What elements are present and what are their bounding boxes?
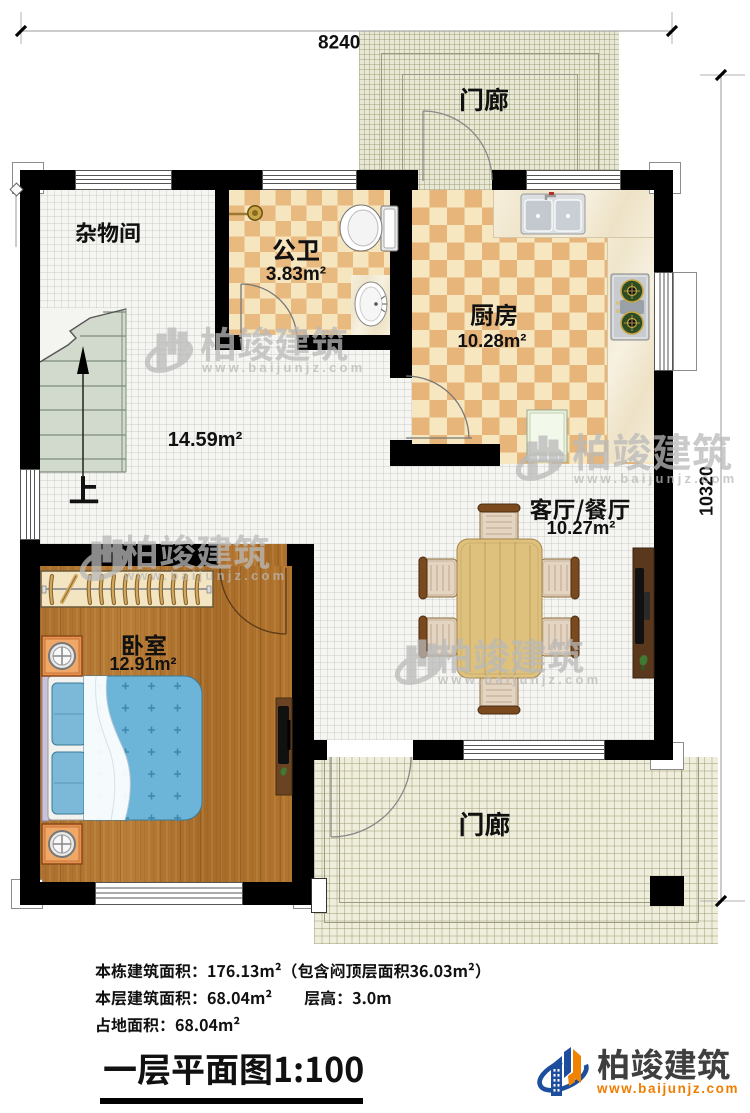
svg-text:10.28m²: 10.28m² [458,330,527,351]
svg-text:www.baijunjz.com: www.baijunjz.com [573,471,737,486]
svg-text:14.59m²: 14.59m² [168,429,243,451]
svg-text:3.83m²: 3.83m² [266,264,326,285]
svg-text:10.27m²: 10.27m² [547,517,616,538]
svg-text:www.baijunjz.com: www.baijunjz.com [437,672,601,687]
svg-text:www.baijunjz.com: www.baijunjz.com [596,1081,739,1096]
svg-text:www.baijunjz.com: www.baijunjz.com [123,568,287,583]
svg-text:www.baijunjz.com: www.baijunjz.com [201,360,365,375]
svg-text:8240: 8240 [318,33,360,54]
svg-text:12.91m²: 12.91m² [109,654,176,674]
